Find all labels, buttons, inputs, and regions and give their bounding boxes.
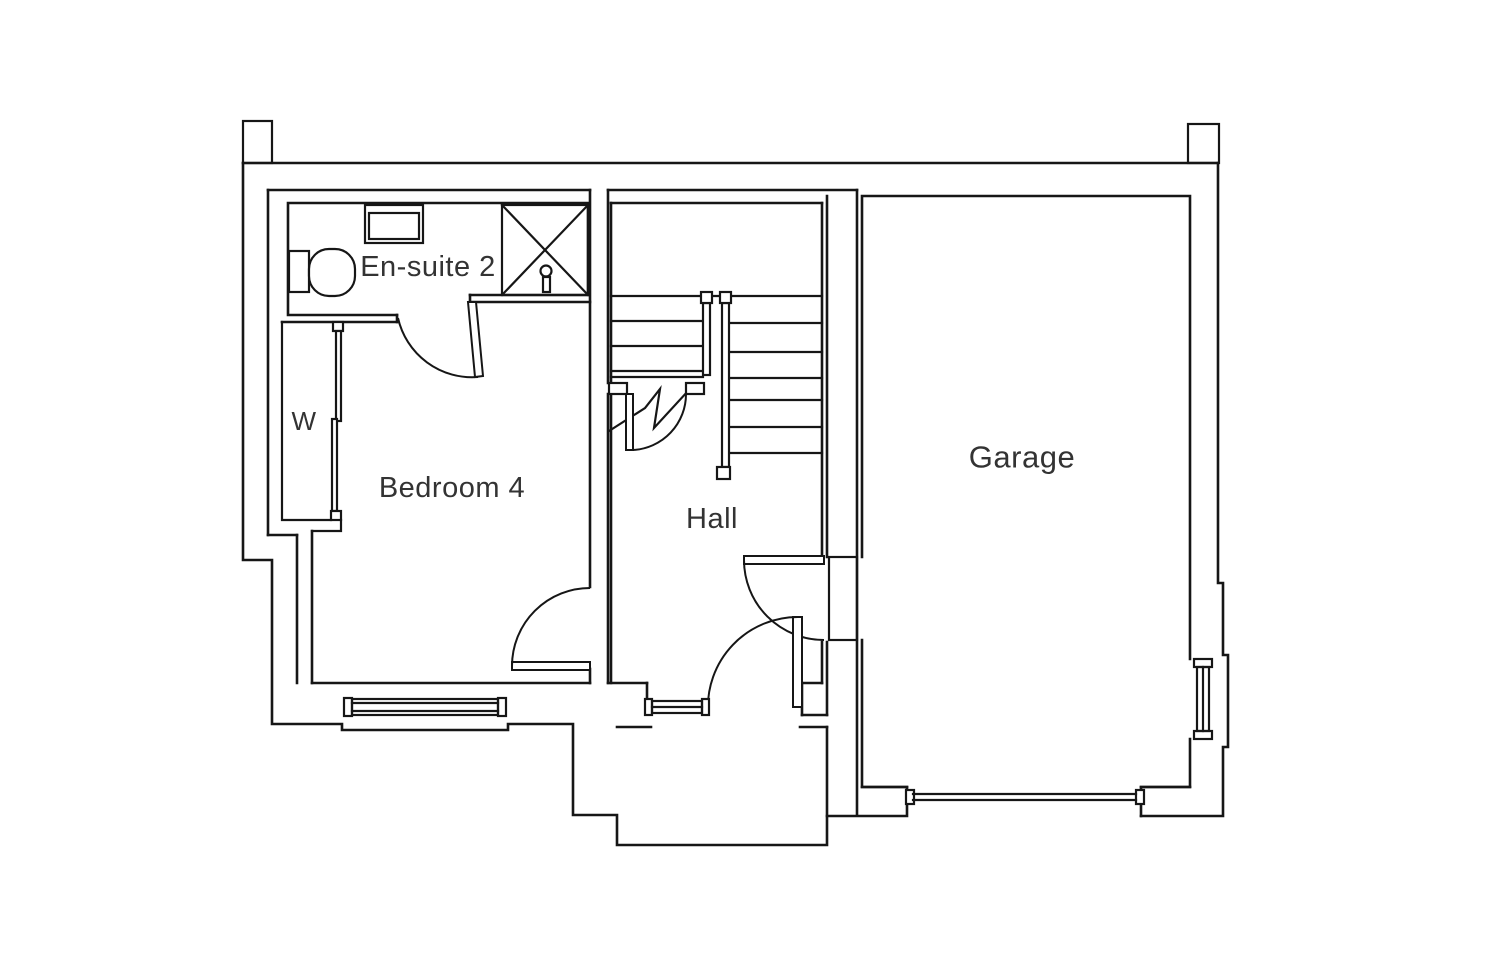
garage-door-icon: [906, 790, 1144, 804]
newel-post: [701, 292, 712, 303]
floor-plan-drawing: En-suite 2 Bedroom 4 Hall Garage W: [0, 0, 1500, 975]
stair-handrail: [703, 303, 710, 375]
label-wardrobe: W: [291, 406, 316, 436]
window-bedroom: [344, 698, 506, 716]
label-ensuite-2: En-suite 2: [360, 251, 496, 283]
chimney-right: [1188, 124, 1219, 163]
stair-handrail: [722, 303, 729, 467]
door-ensuite: [398, 302, 483, 377]
garage-door-reveal: [829, 557, 857, 640]
chimney-left: [243, 121, 272, 163]
window-hall-sidelight: [645, 699, 709, 715]
staircase-icon: [609, 292, 822, 479]
label-bedroom-4: Bedroom 4: [379, 472, 525, 504]
door-bedroom: [512, 588, 590, 670]
newel-post: [720, 292, 731, 303]
label-garage: Garage: [969, 440, 1075, 475]
basin-icon: [365, 205, 423, 243]
label-hall: Hall: [686, 503, 738, 535]
floor-plan-page: En-suite 2 Bedroom 4 Hall Garage W: [0, 0, 1500, 975]
shower-head-icon: [541, 266, 552, 277]
shower-enclosure-icon: [502, 205, 588, 295]
room-labels: En-suite 2 Bedroom 4 Hall Garage W: [291, 251, 1075, 535]
newel-post: [717, 467, 730, 479]
window-garage: [1194, 659, 1212, 739]
toilet-icon: [289, 249, 355, 296]
